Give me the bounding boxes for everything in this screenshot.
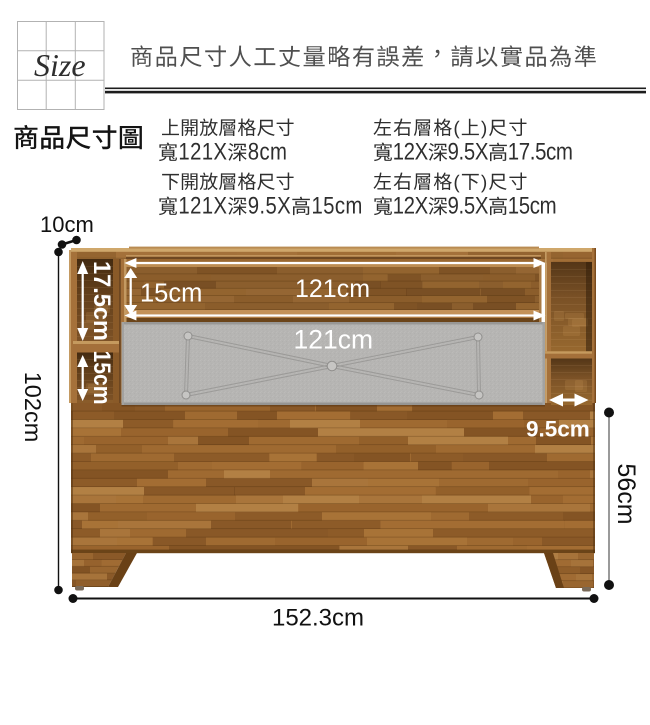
svg-text:121cm: 121cm <box>295 275 370 303</box>
svg-text:152.3cm: 152.3cm <box>272 605 364 632</box>
svg-text:56cm: 56cm <box>612 463 640 524</box>
svg-text:17.5cm: 17.5cm <box>88 261 115 341</box>
svg-text:102cm: 102cm <box>20 372 46 443</box>
svg-text:15cm: 15cm <box>88 351 115 405</box>
svg-text:Size: Size <box>34 47 86 83</box>
svg-text:9.5cm: 9.5cm <box>526 417 590 442</box>
svg-text:10cm: 10cm <box>40 212 94 237</box>
svg-text:15cm: 15cm <box>140 280 202 308</box>
svg-text:121cm: 121cm <box>294 325 374 355</box>
